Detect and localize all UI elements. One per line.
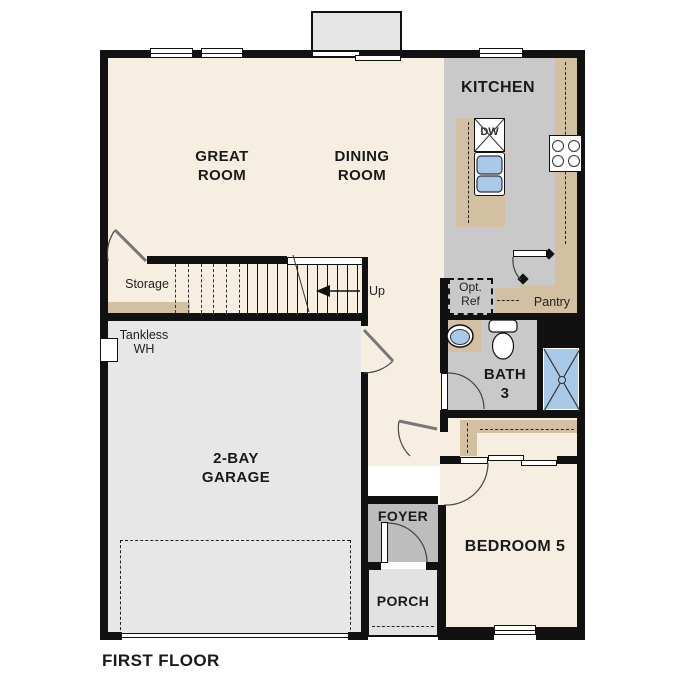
foyer-label: FOYER bbox=[368, 508, 438, 526]
bath3-label: BATH 3 bbox=[455, 366, 555, 404]
driveway-dash-top bbox=[120, 540, 350, 541]
closet-side-shelf bbox=[460, 420, 477, 456]
ref-counter-dash bbox=[497, 300, 519, 301]
wall-bath-left bbox=[440, 320, 448, 373]
up-label: Up bbox=[369, 284, 393, 298]
dining-room-label: DINING ROOM bbox=[302, 148, 422, 186]
closet-bypass-door-2 bbox=[521, 460, 557, 466]
wall-bedroom-left bbox=[438, 505, 446, 640]
wall-bedroom-top-left bbox=[440, 456, 460, 464]
kitchen-label: KITCHEN bbox=[438, 78, 558, 98]
wall-garage-top bbox=[100, 313, 368, 321]
fireplace-bay bbox=[311, 11, 402, 52]
driveway-dash-right bbox=[350, 540, 351, 630]
window-greatroom-1 bbox=[150, 48, 193, 58]
bath-door-leaf bbox=[441, 373, 448, 410]
wall-greatroom-bottom bbox=[147, 256, 287, 264]
wall-garage-bottom-right-stub bbox=[348, 632, 368, 640]
slider-panel-1 bbox=[312, 51, 360, 57]
closet-shelf-dash bbox=[480, 429, 574, 430]
garage-door bbox=[122, 633, 348, 638]
wall-below-bath-stub bbox=[440, 418, 448, 432]
floor-title: FIRST FLOOR bbox=[102, 650, 302, 671]
stair-railing bbox=[287, 257, 367, 265]
window-greatroom-2 bbox=[201, 48, 243, 58]
bedroom-door-leaf bbox=[460, 457, 488, 464]
wall-garage-right-upper bbox=[361, 313, 368, 326]
wall-foyer-bottom-right bbox=[426, 562, 438, 570]
wall-stair-right bbox=[362, 257, 368, 315]
island-counter-dash bbox=[468, 122, 469, 223]
closet-side-dash bbox=[467, 423, 468, 453]
dishwasher-label: DW bbox=[475, 126, 504, 139]
wall-garage-right-lower bbox=[361, 372, 368, 640]
great-room-label: GREAT ROOM bbox=[152, 148, 292, 186]
pantry-door-leaf bbox=[513, 250, 547, 257]
front-door-leaf bbox=[381, 522, 388, 563]
wall-foyer-top bbox=[361, 496, 438, 504]
tankless-wh-label: Tankless WH bbox=[114, 328, 174, 357]
slider-panel-2 bbox=[355, 55, 401, 61]
staircase bbox=[175, 264, 367, 313]
storage-label: Storage bbox=[118, 277, 176, 291]
wall-bedroom-top-right bbox=[557, 456, 585, 464]
wall-bottom-bedroom-left bbox=[438, 627, 494, 640]
bedroom5-label: BEDROOM 5 bbox=[445, 537, 585, 557]
driveway-dash-left bbox=[120, 540, 121, 630]
wall-hall-kitchen-stub bbox=[440, 278, 448, 313]
garage-label: 2-BAY GARAGE bbox=[166, 450, 306, 488]
porch-edge-dash bbox=[372, 626, 434, 627]
pantry-label: Pantry bbox=[522, 295, 582, 309]
closet-shelf bbox=[477, 420, 577, 433]
wall-bottom-bedroom-right bbox=[536, 627, 585, 640]
opt-ref-label: Opt. Ref bbox=[450, 281, 491, 309]
counter-by-ref bbox=[495, 288, 521, 315]
closet-bypass-door-1 bbox=[488, 455, 524, 461]
window-bedroom5 bbox=[494, 625, 536, 635]
floor-plan: GREAT ROOM DINING ROOM KITCHEN 2-BAY GAR… bbox=[0, 0, 687, 687]
island-sink-unit bbox=[474, 152, 505, 196]
wall-foyer-bottom-left bbox=[361, 562, 381, 570]
window-kitchen bbox=[479, 48, 523, 58]
wall-garage-bottom-left-stub bbox=[100, 632, 122, 640]
cooktop bbox=[549, 135, 582, 172]
porch-label: PORCH bbox=[368, 593, 438, 611]
